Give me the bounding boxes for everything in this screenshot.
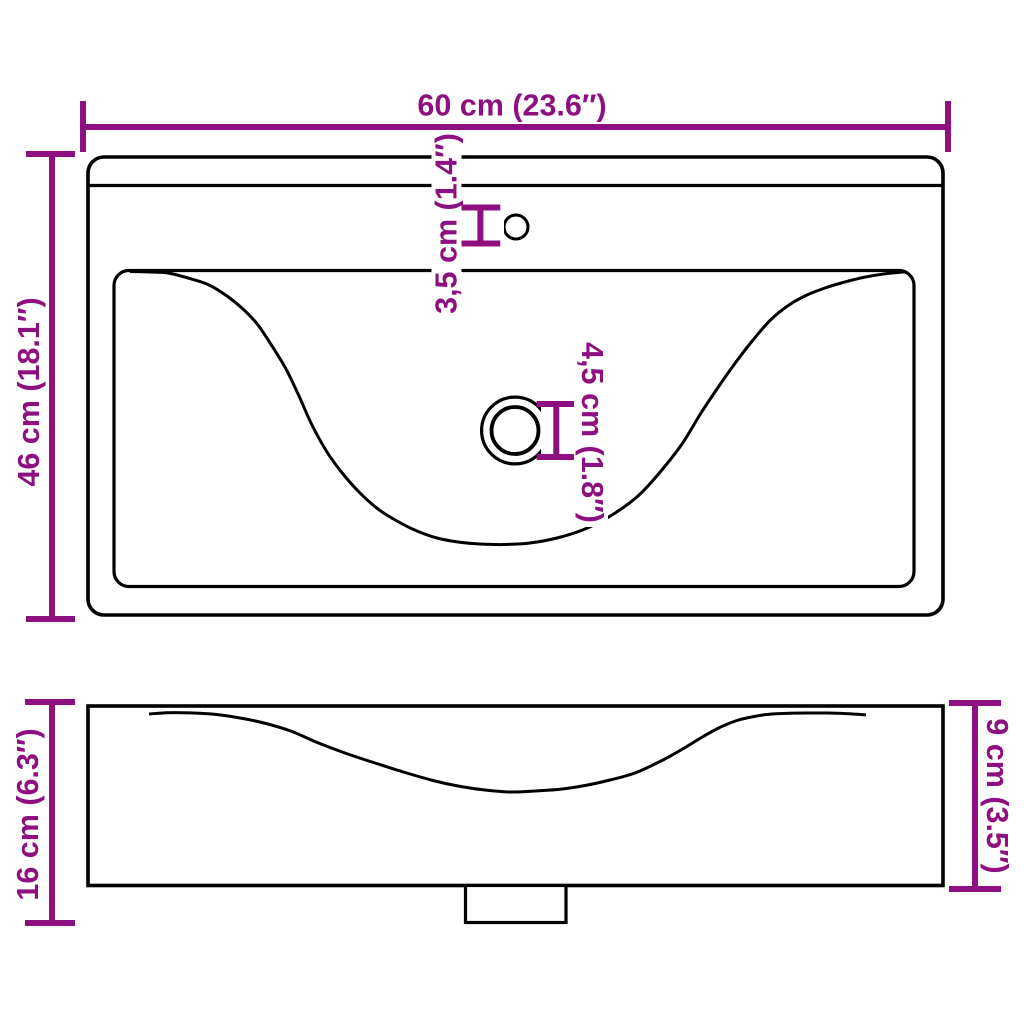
svg-text:60 cm (23.6″): 60 cm (23.6″) (417, 89, 606, 123)
svg-text:9 cm (3.5″): 9 cm (3.5″) (980, 718, 1014, 873)
svg-text:46 cm (18.1″): 46 cm (18.1″) (12, 297, 46, 486)
svg-text:4,5 cm (1.8″): 4,5 cm (1.8″) (575, 342, 609, 523)
svg-text:3,5 cm (1.4″): 3,5 cm (1.4″) (430, 133, 464, 314)
svg-text:16 cm (6.3″): 16 cm (6.3″) (11, 728, 45, 900)
